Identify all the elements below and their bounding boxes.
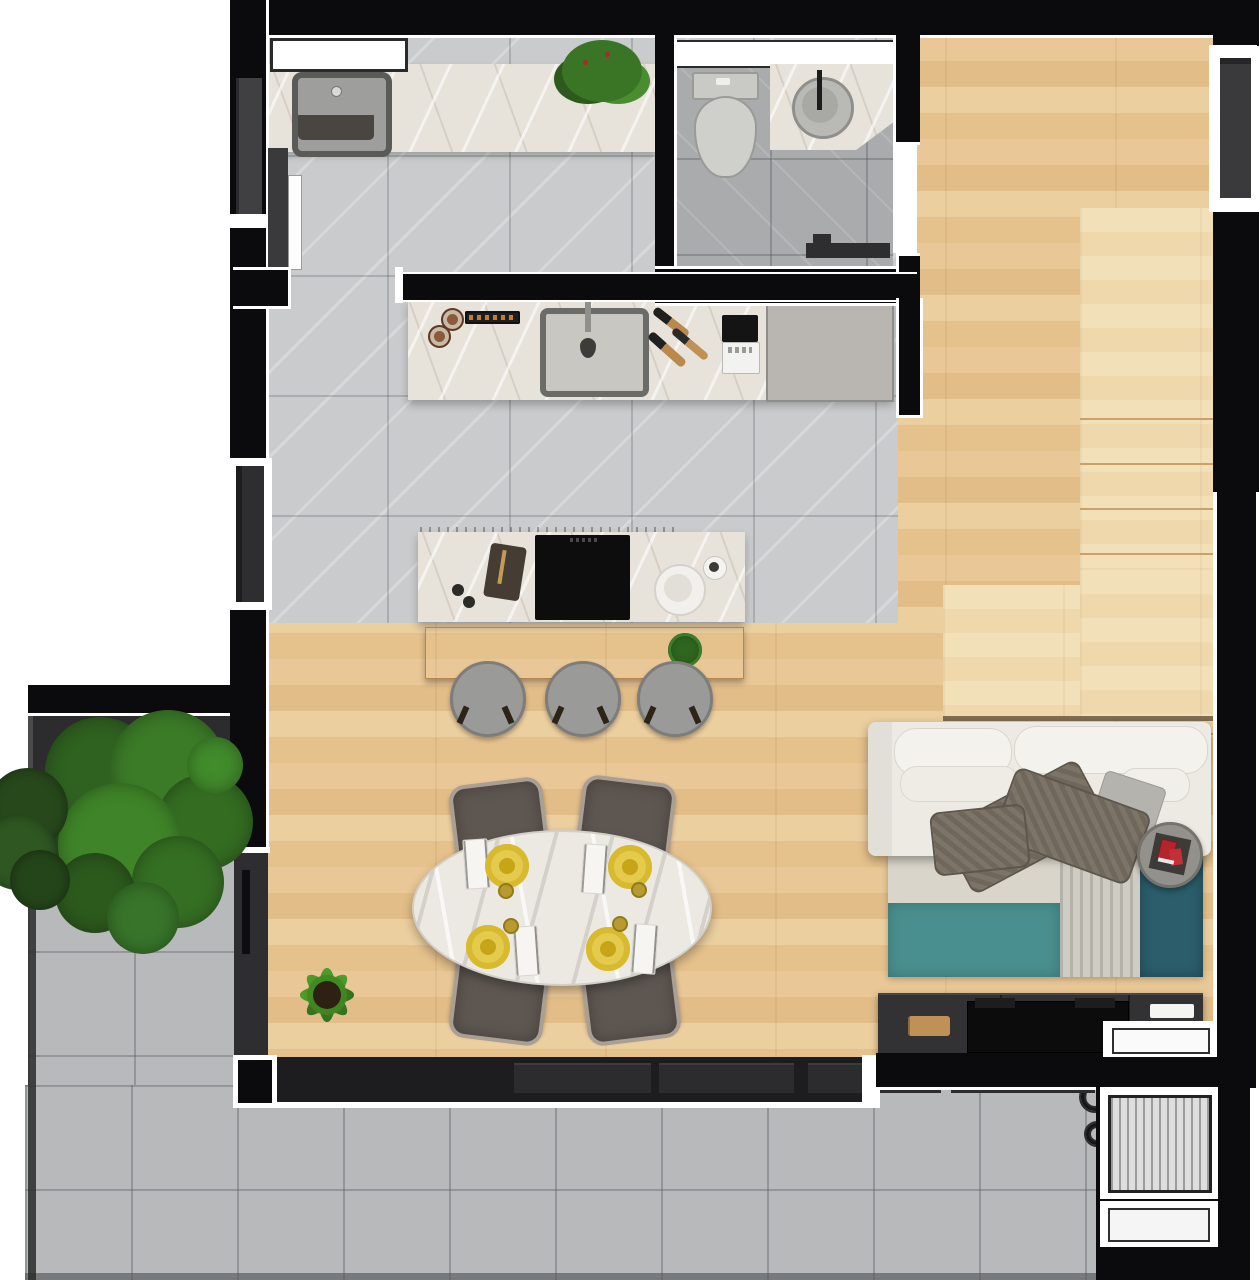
stairs-upper-flight: [1080, 208, 1213, 573]
left-wall-window-glass: [236, 466, 264, 602]
sofa-back-cushion: [1014, 726, 1208, 774]
kitchen-small-plate: [428, 325, 451, 348]
rug-teal-panel: [888, 903, 1060, 977]
napkin-cutlery: [630, 923, 658, 975]
stool: [637, 661, 713, 737]
wc-right-wall-upper: [893, 35, 920, 145]
stair-tread: [1080, 418, 1213, 465]
tree-foliage-blob: [107, 882, 179, 954]
island-cup-inner: [709, 562, 719, 572]
dining-cup: [631, 882, 647, 898]
bottom-glass-wall-seam: [233, 1102, 880, 1108]
wc-faucet-icon: [817, 70, 822, 110]
dining-floor-plant-center: [313, 981, 341, 1009]
dining-table: [412, 830, 712, 986]
bush-foliage-blob: [10, 850, 70, 910]
shaft-hatched-block: [1100, 1087, 1218, 1199]
glass-door-panel: [659, 1063, 794, 1093]
knit-blanket-piece: [929, 803, 1031, 877]
laundry-sink-basin-dark: [298, 115, 374, 140]
dining-cup: [498, 883, 514, 899]
laundry-door-leaf: [288, 175, 302, 270]
right-wall-top: [1213, 0, 1259, 46]
dining-cup: [612, 916, 628, 932]
shaft-window-block: [1103, 1021, 1217, 1057]
laundry-window: [270, 38, 408, 72]
napkin-cutlery: [580, 843, 608, 895]
top-wall: [230, 0, 1259, 38]
cooktop-controls: [570, 538, 598, 542]
wood-tray: [908, 1016, 950, 1036]
shaft-window-inner: [1112, 1028, 1210, 1054]
bottom-glass-wall: [233, 1057, 880, 1104]
laundry-plant: [562, 40, 642, 102]
wc-towel-rail-end: [813, 234, 831, 243]
appliance-panel: [766, 303, 894, 402]
terrace-floor-bottom: [25, 1085, 1096, 1280]
left-glass-mullion: [242, 870, 250, 954]
kitchen-spice-rack-dots: [469, 315, 516, 320]
coffee-maker: [722, 315, 758, 342]
kitchen-back-wall: [403, 272, 917, 302]
left-wall-upper: [230, 0, 269, 458]
dinner-plate: [466, 925, 510, 969]
tv-bracket: [975, 998, 1015, 1008]
coffee-maker-detail: [728, 347, 752, 353]
left-wall-notch: [230, 214, 266, 228]
floor-plan-canvas: [0, 0, 1259, 1280]
dinner-plate: [586, 927, 630, 971]
terrace-edge-bottom: [25, 1273, 1096, 1280]
wc-door-opening: [893, 142, 917, 253]
stool: [450, 661, 526, 737]
wc-towel-rail: [806, 243, 890, 258]
left-glass-panel: [234, 853, 268, 1055]
left-wall-niche: [236, 78, 262, 218]
wall-stub-kitchen-right: [896, 298, 923, 418]
glass-door-panel: [514, 1063, 651, 1093]
cooktop: [535, 535, 630, 620]
right-wall-mid: [1213, 212, 1259, 492]
laundry-plant-berry: [605, 52, 610, 57]
napkin-cutlery: [512, 925, 540, 977]
bottom-left-post: [233, 1055, 277, 1108]
side-table: [1137, 822, 1203, 888]
serving-plate-inner: [664, 574, 692, 602]
stairs-edge-line: [943, 716, 1213, 721]
laundry-plant-berry: [583, 60, 588, 65]
right-wall-window-glass: [1220, 58, 1251, 198]
wall-stub-laundry: [233, 267, 291, 309]
laundry-faucet-icon: [331, 86, 342, 97]
media-box: [1150, 1004, 1194, 1018]
sofa-left-armrest: [868, 722, 892, 856]
shaft-hatched-inner: [1108, 1095, 1212, 1193]
shaft-plain-block: [1100, 1201, 1218, 1247]
stair-tread: [1080, 463, 1213, 510]
right-wall-lower: [1213, 492, 1256, 1088]
tree-foliage-blob: [187, 737, 243, 793]
terrace-top-wall: [28, 685, 235, 716]
shaft-plain-inner: [1108, 1208, 1210, 1242]
dining-cup: [503, 918, 519, 934]
tv-bracket: [1075, 998, 1115, 1008]
wc-left-wall: [655, 35, 677, 292]
pepper-mill: [463, 596, 475, 608]
pepper-mill: [452, 584, 464, 596]
dinner-plate: [485, 844, 529, 888]
dinner-plate: [608, 845, 652, 889]
wc-window: [675, 40, 899, 68]
wc-toilet-button: [716, 78, 730, 85]
stairs-lower-steps: [943, 585, 1080, 718]
stairs-landing: [1080, 570, 1213, 718]
kitchen-back-wall-cap: [395, 267, 403, 303]
stool: [545, 661, 621, 737]
stair-tread: [1080, 508, 1213, 555]
laundry-door-frame: [268, 148, 288, 268]
